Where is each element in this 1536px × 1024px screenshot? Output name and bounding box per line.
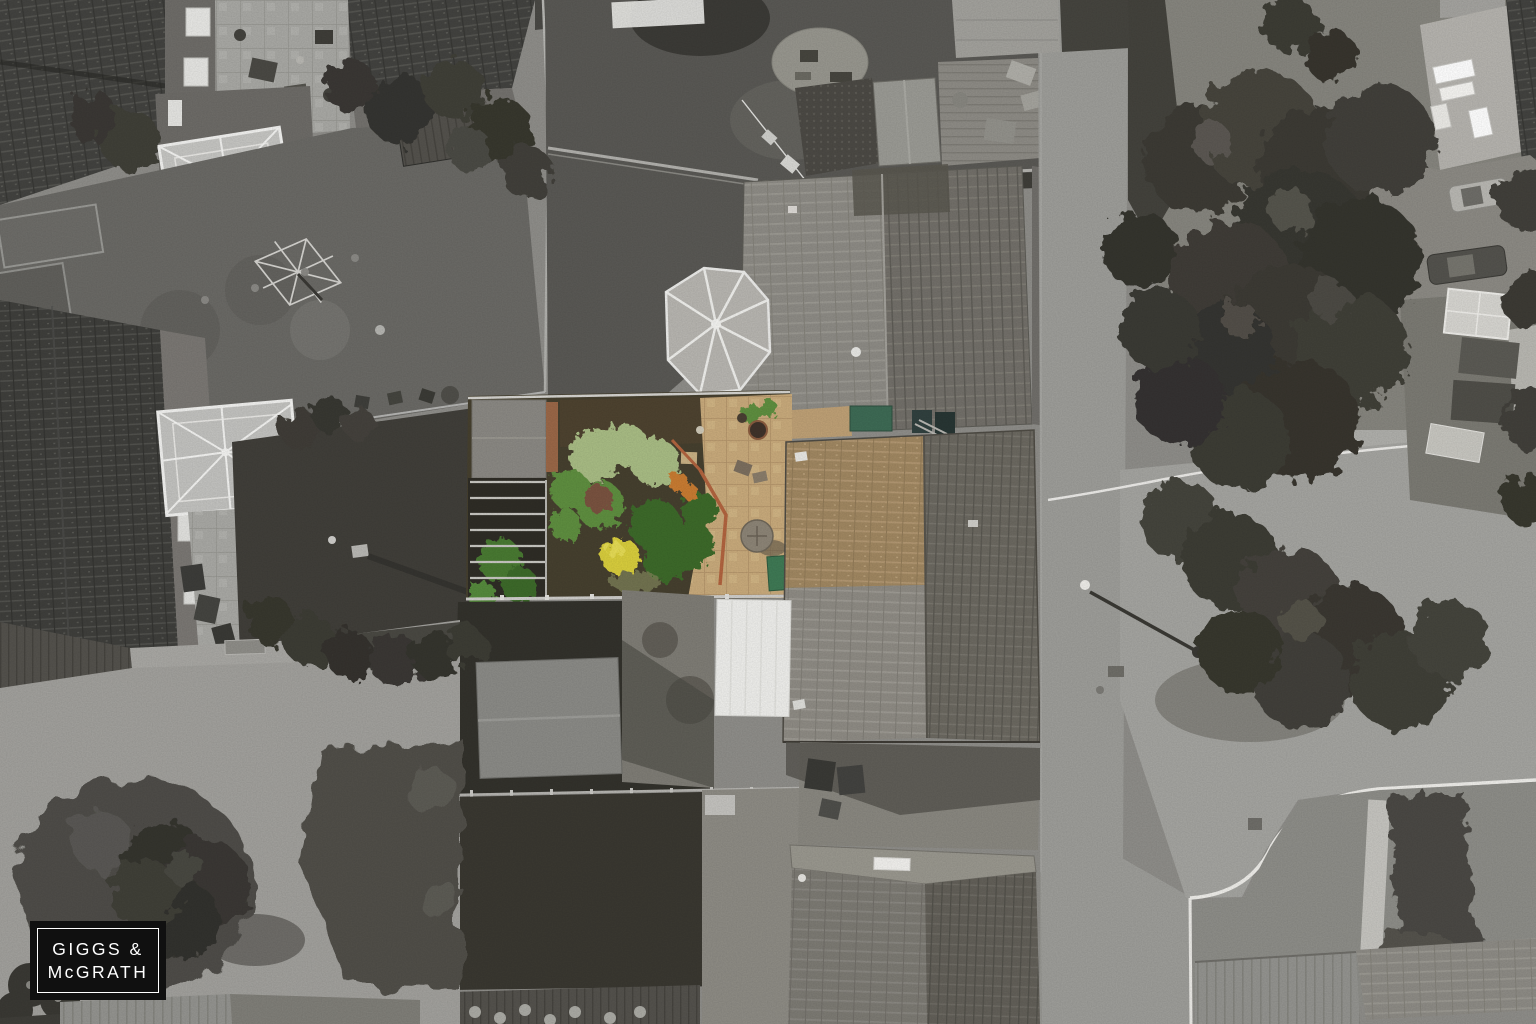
watermark-border: GIGGS & McGRATH bbox=[37, 928, 159, 993]
watermark-text-line2: McGRATH bbox=[48, 962, 149, 982]
photo-canvas bbox=[0, 0, 1536, 1024]
aerial-drone-photo: GIGGS & McGRATH bbox=[0, 0, 1536, 1024]
watermark-text-line1: GIGGS & bbox=[52, 939, 143, 959]
agency-watermark: GIGGS & McGRATH bbox=[30, 921, 166, 1000]
film-grain bbox=[0, 0, 1536, 1024]
